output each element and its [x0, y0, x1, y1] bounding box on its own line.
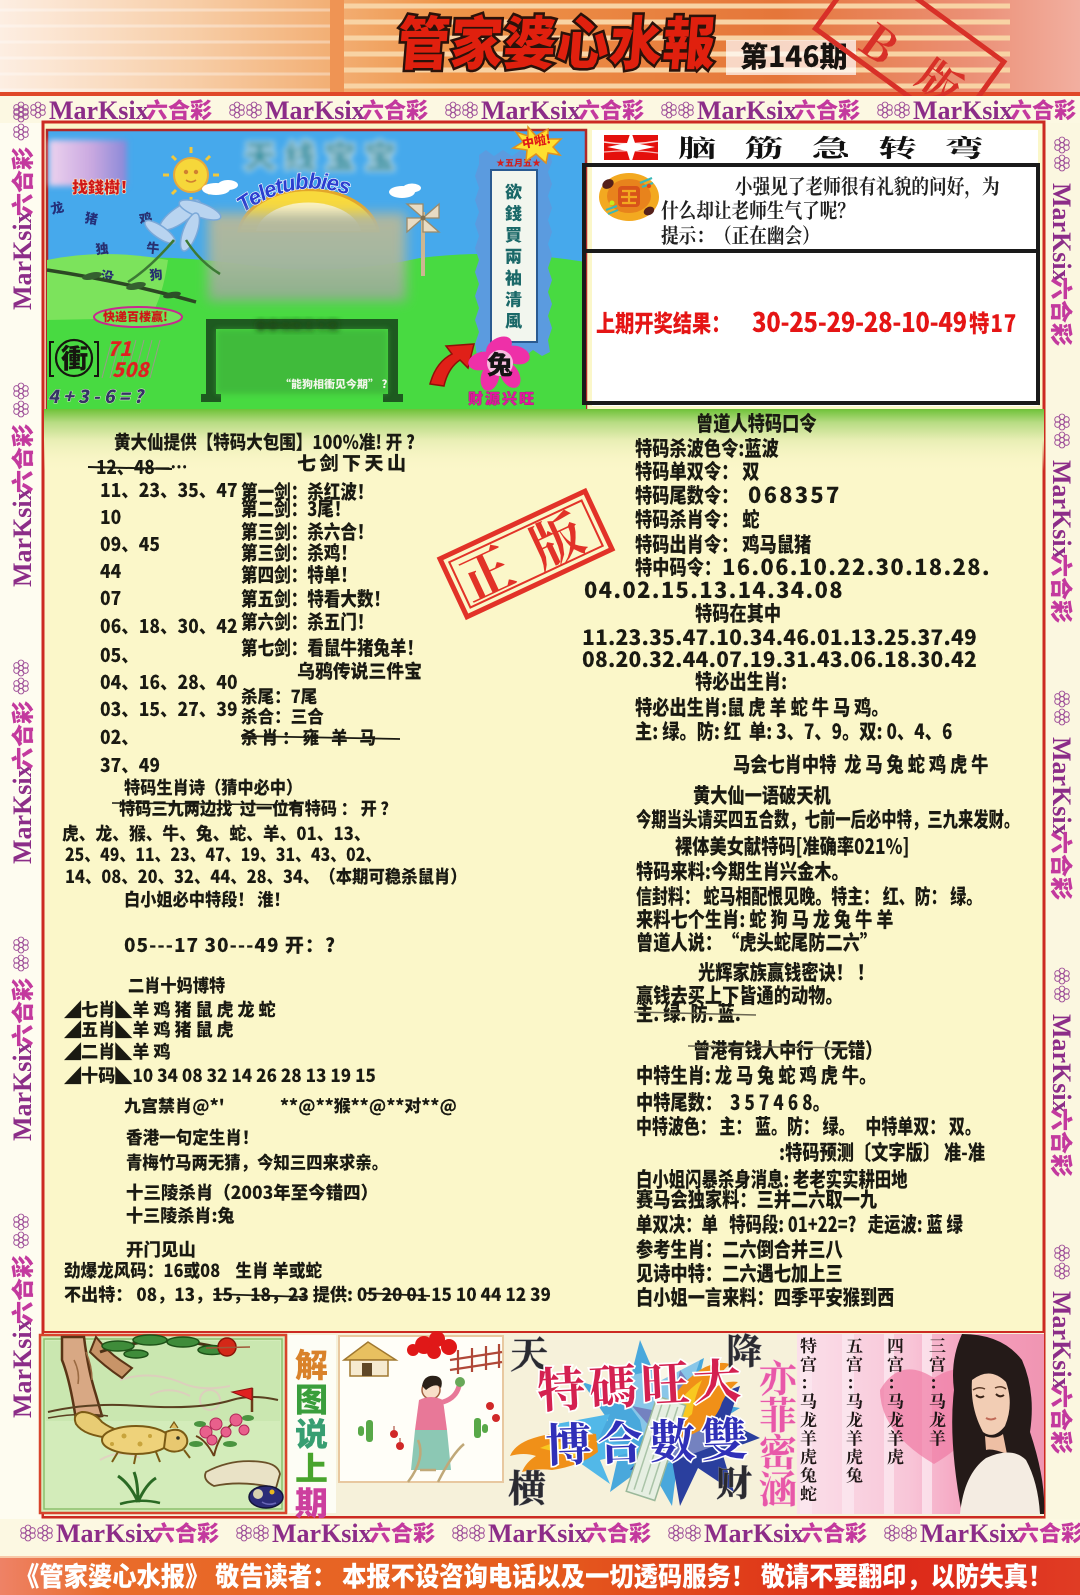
svg-text:MarKsix: MarKsix: [8, 487, 37, 587]
svg-text:MarKsix: MarKsix: [8, 1041, 37, 1141]
svg-text:MarKsix: MarKsix: [1047, 1014, 1076, 1114]
svg-text:MarKsix: MarKsix: [8, 1318, 37, 1418]
svg-text:MarKsix: MarKsix: [56, 1519, 156, 1548]
svg-text:MarKsix: MarKsix: [920, 1519, 1020, 1548]
svg-text:MarKsix: MarKsix: [8, 210, 37, 310]
svg-text:MarKsix: MarKsix: [1047, 460, 1076, 560]
svg-text:MarKsix: MarKsix: [1047, 1291, 1076, 1391]
svg-text:MarKsix: MarKsix: [1047, 183, 1076, 283]
svg-text:MarKsix: MarKsix: [1047, 737, 1076, 837]
svg-text:MarKsix: MarKsix: [8, 764, 37, 864]
svg-text:MarKsix: MarKsix: [704, 1519, 804, 1548]
svg-text:MarKsix: MarKsix: [272, 1519, 372, 1548]
svg-text:MarKsix: MarKsix: [488, 1519, 588, 1548]
